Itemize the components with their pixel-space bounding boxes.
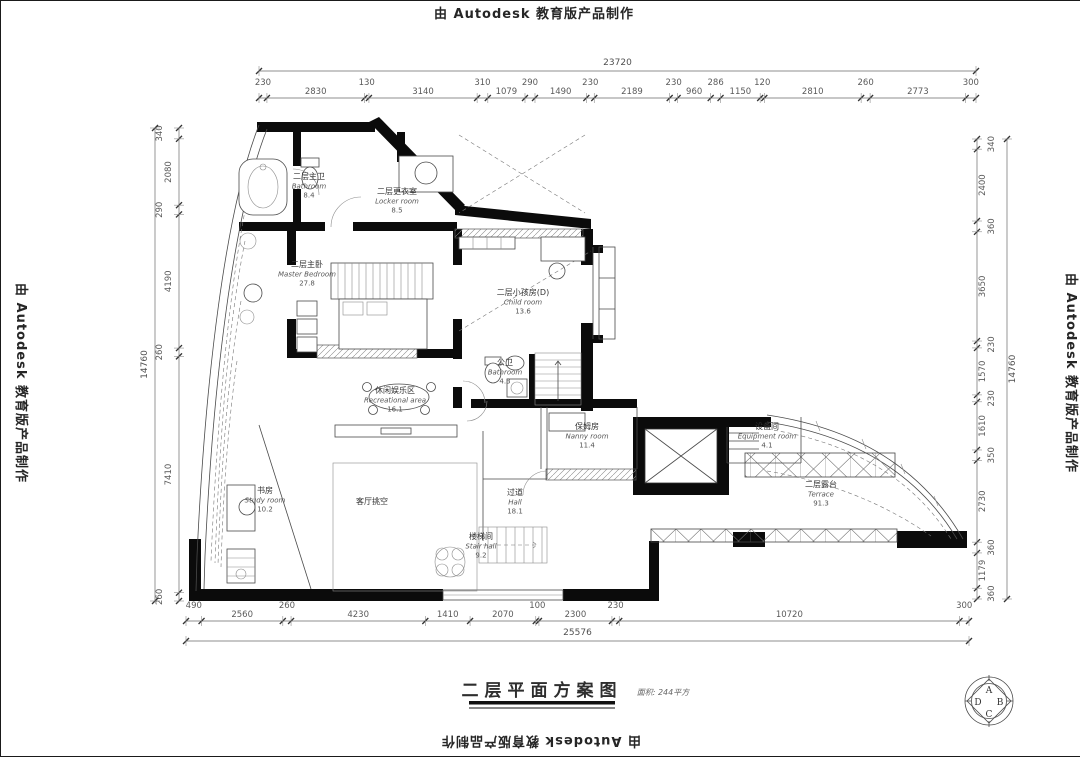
stairs-upper — [535, 353, 581, 405]
dim-label: 2560 — [231, 610, 253, 620]
elevator-shaft — [645, 429, 717, 483]
dim-label: 310 — [474, 78, 490, 88]
logo-letter-d: D — [974, 698, 981, 708]
watermark-left: 由 Autodesk 教育版产品制作 — [13, 283, 29, 483]
dim-overall-right: 14760 — [1008, 354, 1018, 383]
dim-label: 2300 — [565, 610, 587, 620]
room-area: 27.8 — [299, 280, 315, 288]
dim-label: 1079 — [496, 87, 518, 97]
dim-label: 290 — [155, 202, 165, 218]
dim-label: 2400 — [978, 174, 988, 196]
room-name-zh: 休闲娱乐区 — [375, 385, 415, 395]
drawing-title: 二层平面方案图 — [462, 680, 623, 701]
room-name-zh: 设备间 — [755, 421, 779, 431]
room-name-zh: 二层小孩房(D) — [497, 287, 549, 297]
room-name-en: Master Bedroom — [278, 271, 336, 279]
room-label-living-void: 客厅挑空 — [356, 496, 388, 506]
room-area: 16.1 — [387, 406, 403, 414]
dim-label: 2070 — [492, 610, 514, 620]
dim-label: 230 — [666, 78, 682, 88]
dim-label: 1179 — [978, 560, 988, 582]
watermark-right: 由 Autodesk 教育版产品制作 — [1063, 273, 1079, 473]
room-name-zh: 书房 — [257, 485, 273, 495]
room-label-stair-hall: 楼梯间Stair hall9.2 — [465, 531, 496, 560]
watermark-bottom: 由 Autodesk 教育版产品制作 — [441, 733, 641, 749]
dim-label: 340 — [987, 136, 997, 152]
room-name-zh: 过道 — [507, 487, 523, 497]
room-name-zh: 公卫 — [497, 358, 513, 367]
dim-overall-bottom: 25576 — [563, 628, 592, 638]
room-name-en: Recreational area — [364, 397, 426, 405]
dim-label: 1150 — [730, 87, 752, 97]
dim-chain-top: 2302830130314031010792901490230218923096… — [255, 58, 979, 103]
room-name-en: Locker room — [375, 198, 419, 206]
dim-label: 260 — [155, 589, 165, 605]
room-name-en: Equipment room — [738, 433, 797, 441]
dim-label: 286 — [708, 78, 724, 88]
room-name-zh: 二层主卫 — [293, 171, 325, 181]
room-name-zh: 保姆房 — [575, 421, 599, 431]
bookshelf — [227, 549, 255, 583]
dim-label: 7410 — [164, 464, 174, 486]
room-name-en: Bathroom — [488, 369, 523, 377]
room-area: 11.4 — [579, 442, 595, 450]
room-name-zh: 客厅挑空 — [356, 496, 388, 506]
dim-label: 960 — [686, 87, 702, 97]
dim-label: 2810 — [802, 87, 824, 97]
dim-label: 300 — [963, 78, 979, 88]
plant-terrace — [240, 233, 256, 249]
logo-letter-a: A — [985, 686, 993, 696]
tv-cabinet — [335, 425, 457, 437]
dim-label: 130 — [359, 78, 375, 88]
dim-label: 3650 — [978, 276, 988, 298]
room-area: 8.4 — [303, 192, 315, 200]
room-area: 13.6 — [515, 308, 531, 316]
dim-chain-right: 3402400360365023015702301610350273036011… — [972, 136, 1018, 602]
locker-cross — [459, 135, 585, 213]
dim-label: 300 — [956, 601, 972, 611]
dim-label: 360 — [987, 218, 997, 234]
dim-label: 1610 — [978, 415, 988, 437]
toilet-master — [301, 158, 319, 167]
dim-label: 230 — [255, 78, 271, 88]
dim-label: 230 — [987, 390, 997, 406]
dim-overall-top: 23720 — [603, 58, 632, 68]
title-block: 二层平面方案图 面积: 244平方 — [462, 680, 691, 708]
child-chair — [549, 263, 565, 279]
dim-label: 290 — [522, 78, 538, 88]
room-area: 4.3 — [499, 378, 510, 386]
room-area: 18.1 — [507, 508, 523, 516]
dim-label: 360 — [987, 539, 997, 555]
dim-label: 1410 — [437, 610, 459, 620]
dim-label: 4190 — [164, 270, 174, 292]
room-name-en: Stair hall — [465, 543, 496, 551]
area-note: 面积: 244平方 — [637, 688, 691, 697]
room-label-hall: 过道Hall18.1 — [507, 487, 523, 516]
dim-label: 2830 — [305, 87, 327, 97]
dim-label: 260 — [155, 344, 165, 360]
room-name-en: Terrace — [808, 491, 834, 499]
dim-label: 1490 — [550, 87, 572, 97]
plant-stair-hall — [435, 547, 465, 577]
room-name-zh: 楼梯间 — [469, 531, 493, 541]
dim-label: 230 — [607, 601, 623, 611]
dim-chain-bottom: 4902560260423014102070100230023010720300… — [183, 601, 972, 646]
room-area: 4.1 — [761, 442, 772, 450]
dim-label: 4230 — [347, 610, 369, 620]
master-bed — [339, 299, 427, 349]
logo-letter-b: B — [997, 698, 1004, 708]
room-area: 10.2 — [257, 506, 273, 514]
dim-label: 2189 — [621, 87, 643, 97]
room-label-child-room-d: 二层小孩房(D)Child room13.6 — [497, 287, 549, 316]
dim-label: 230 — [987, 336, 997, 352]
room-label-locker-room: 二层更衣室Locker room8.5 — [375, 186, 419, 215]
drawing-sheet: 由 Autodesk 教育版产品制作 由 Autodesk 教育版产品制作 由 … — [0, 0, 1080, 757]
room-name-en: Bathroom — [292, 183, 327, 191]
dim-label: 120 — [754, 78, 770, 88]
dim-label: 490 — [186, 601, 202, 611]
dim-chain-left: 34020802904190260741026014760 — [140, 125, 184, 605]
plant-bedroom — [240, 310, 254, 324]
bathtub — [239, 159, 287, 215]
room-name-zh: 二层更衣室 — [377, 186, 417, 196]
dim-label: 230 — [582, 78, 598, 88]
dim-label: 350 — [987, 447, 997, 463]
room-name-en: Hall — [508, 499, 521, 507]
dim-label: 1570 — [978, 361, 988, 383]
study-desk — [227, 485, 255, 531]
floorplan-canvas: 由 Autodesk 教育版产品制作 由 Autodesk 教育版产品制作 由 … — [1, 1, 1080, 756]
furniture — [227, 135, 759, 583]
room-name-zh: 二层露台 — [805, 479, 837, 489]
dim-label: 100 — [529, 601, 545, 611]
room-label-master-bedroom: 二层主卧Master Bedroom27.8 — [278, 259, 336, 288]
terrace-cabinet-band — [745, 453, 895, 477]
room-name-en: Nanny room — [565, 433, 608, 441]
bedroom-chair — [244, 284, 262, 302]
wardrobe — [331, 263, 433, 299]
room-name-zh: 二层主卧 — [291, 259, 323, 269]
child-desk — [541, 237, 585, 261]
dim-label: 260 — [858, 78, 874, 88]
dim-label: 360 — [987, 585, 997, 601]
dim-label: 10720 — [776, 610, 803, 620]
compass-logo: A D B C — [965, 675, 1013, 727]
room-area: 9.2 — [475, 552, 486, 560]
room-name-en: Study room — [245, 497, 286, 505]
logo-letter-c: C — [986, 710, 993, 720]
room-name-en: Child room — [504, 299, 542, 307]
terrace-window-band — [651, 529, 897, 542]
dim-overall-left: 14760 — [140, 350, 150, 379]
dim-label: 2730 — [978, 490, 988, 512]
generated-annotations: 2302830130314031010792901490230218923096… — [140, 58, 1018, 646]
dim-label: 3140 — [412, 87, 434, 97]
nanny-room-window — [546, 469, 636, 480]
room-area: 91.3 — [813, 500, 829, 508]
dim-label: 2080 — [164, 161, 174, 183]
watermark-top: 由 Autodesk 教育版产品制作 — [434, 6, 634, 22]
bay-window — [599, 247, 615, 339]
room-label-terrace: 二层露台Terrace91.3 — [805, 479, 837, 508]
room-area: 8.5 — [391, 207, 402, 215]
dim-label: 2773 — [907, 87, 929, 97]
dim-label: 260 — [279, 601, 295, 611]
